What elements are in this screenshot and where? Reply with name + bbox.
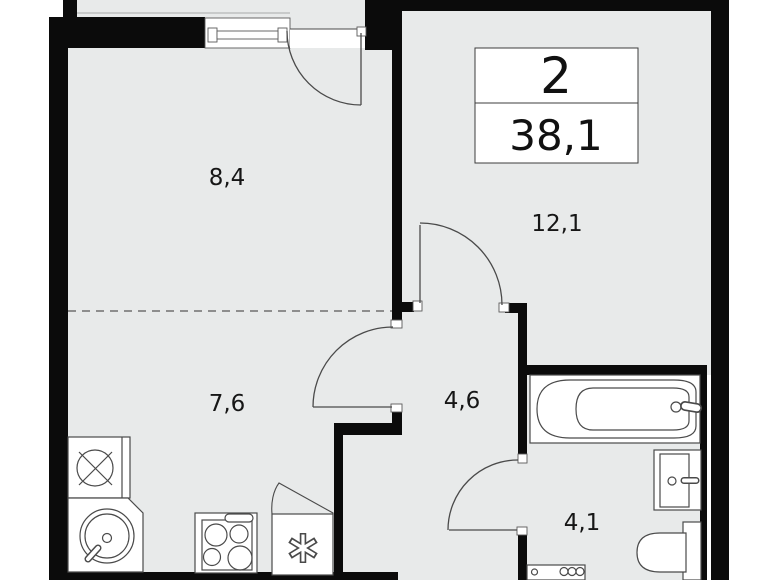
shaft-gap — [707, 375, 711, 580]
unit-rooms-count: 2 — [540, 47, 572, 105]
window — [205, 18, 290, 48]
unit-total-area: 38,1 — [509, 111, 603, 160]
wall-stub-living-door — [402, 302, 414, 312]
label-hallway: 4,6 — [444, 388, 481, 414]
wall-top-chunk — [365, 0, 402, 50]
floor-plan: 2 38,1 8,4 12,1 7,6 4,6 4,1 — [0, 0, 780, 580]
floor-plan-drawing: 2 38,1 8,4 12,1 7,6 4,6 4,1 — [0, 0, 780, 580]
stop-bathroom-door — [518, 454, 527, 463]
wall-hall-bath-upper — [518, 313, 527, 455]
stove — [195, 513, 257, 573]
wall-bath-top — [527, 365, 707, 375]
wall-left — [49, 17, 68, 580]
hinge-kitchen-door — [391, 404, 402, 412]
balcony-door-opening — [290, 29, 365, 48]
balcony-opening — [290, 29, 365, 48]
hinge-bathroom-door — [517, 527, 527, 535]
wash-basin — [654, 450, 701, 510]
unit-title-box: 2 38,1 — [475, 47, 638, 163]
window-end-cap-left — [208, 28, 217, 42]
wall-top-living — [400, 0, 729, 11]
wall-kitchen-hall — [334, 435, 343, 580]
wall-top-bedroom — [49, 17, 205, 48]
bathtub — [530, 375, 700, 443]
label-bedroom: 8,4 — [209, 165, 246, 191]
window-sash — [217, 31, 278, 39]
washer-dryer — [527, 565, 585, 580]
stop-living-door — [499, 303, 509, 312]
wall-balcony-stub — [63, 0, 77, 17]
label-bathroom: 4,1 — [564, 510, 601, 536]
wall-bedroom-living — [392, 50, 402, 322]
wall-kitchen-jog — [334, 423, 402, 435]
window-end-cap-right — [278, 28, 287, 42]
washing-machine — [68, 437, 130, 498]
kitchen-sink — [68, 498, 143, 572]
wall-hall-bath-lower — [518, 533, 527, 580]
label-kitchen: 7,6 — [209, 391, 246, 417]
label-living: 12,1 — [531, 211, 582, 237]
wall-right-outer — [711, 0, 729, 580]
